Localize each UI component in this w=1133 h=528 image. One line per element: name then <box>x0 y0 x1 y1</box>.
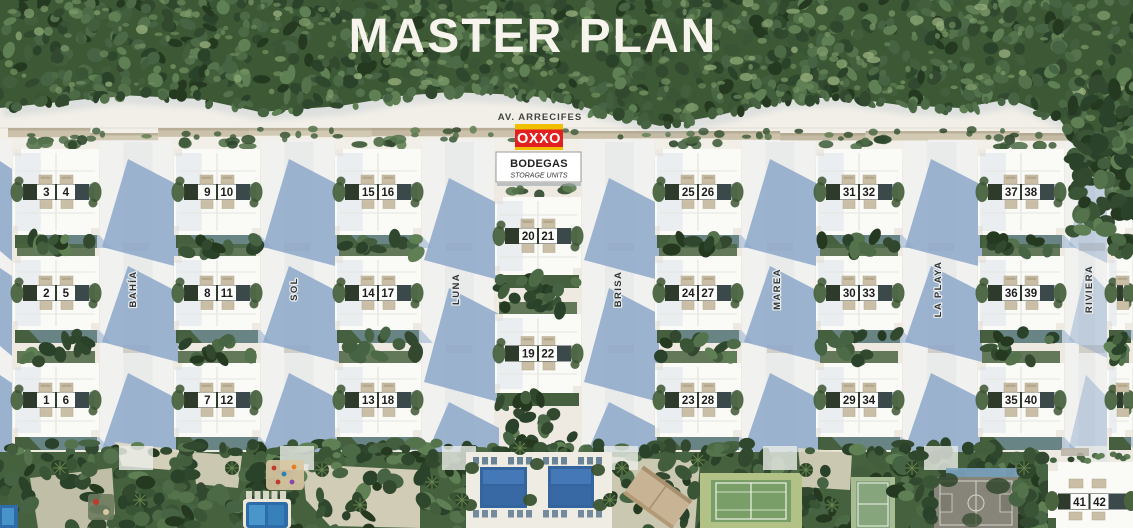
svg-text:MAREA: MAREA <box>772 268 783 310</box>
svg-text:31: 31 <box>843 187 856 199</box>
svg-text:4: 4 <box>63 187 70 199</box>
svg-text:10: 10 <box>220 187 233 199</box>
svg-text:LUNA: LUNA <box>451 273 462 305</box>
svg-text:AV. ARRECIFES: AV. ARRECIFES <box>498 112 582 123</box>
svg-text:BAHÍA: BAHÍA <box>128 270 139 307</box>
svg-text:21: 21 <box>541 231 554 243</box>
svg-text:BRISA: BRISA <box>613 271 624 308</box>
svg-text:MASTER PLAN: MASTER PLAN <box>349 10 718 63</box>
svg-text:BODEGAS: BODEGAS <box>510 158 568 170</box>
svg-text:26: 26 <box>701 187 714 199</box>
svg-text:33: 33 <box>862 288 875 300</box>
svg-text:6: 6 <box>63 395 69 407</box>
svg-text:24: 24 <box>682 288 695 300</box>
svg-text:18: 18 <box>381 395 394 407</box>
svg-text:12: 12 <box>220 395 233 407</box>
svg-text:17: 17 <box>381 288 394 300</box>
svg-text:15: 15 <box>362 187 375 199</box>
svg-text:35: 35 <box>1005 395 1018 407</box>
svg-text:25: 25 <box>682 187 695 199</box>
svg-text:3: 3 <box>43 187 49 199</box>
svg-text:38: 38 <box>1024 187 1037 199</box>
svg-text:14: 14 <box>362 288 375 300</box>
svg-text:OXXO: OXXO <box>517 131 561 147</box>
svg-text:LA PLAYA: LA PLAYA <box>933 261 944 318</box>
svg-text:22: 22 <box>541 349 554 361</box>
svg-text:RIVIERA: RIVIERA <box>1084 265 1095 313</box>
svg-text:STORAGE UNITS: STORAGE UNITS <box>510 173 567 180</box>
svg-text:7: 7 <box>204 395 210 407</box>
svg-text:19: 19 <box>522 349 535 361</box>
svg-text:11: 11 <box>221 288 234 300</box>
svg-text:29: 29 <box>843 395 856 407</box>
svg-text:SOL: SOL <box>289 277 300 301</box>
svg-text:13: 13 <box>362 395 375 407</box>
svg-text:32: 32 <box>862 187 875 199</box>
svg-text:9: 9 <box>204 187 210 199</box>
svg-text:8: 8 <box>204 288 211 300</box>
svg-text:23: 23 <box>682 395 695 407</box>
svg-text:5: 5 <box>63 288 70 300</box>
svg-text:34: 34 <box>862 395 875 407</box>
svg-text:42: 42 <box>1093 497 1106 509</box>
svg-text:1: 1 <box>43 395 50 407</box>
svg-text:2: 2 <box>43 288 49 300</box>
svg-text:30: 30 <box>843 288 856 300</box>
svg-text:37: 37 <box>1005 187 1018 199</box>
svg-text:40: 40 <box>1024 395 1037 407</box>
svg-text:36: 36 <box>1005 288 1018 300</box>
svg-text:20: 20 <box>522 231 535 243</box>
svg-text:41: 41 <box>1073 497 1086 509</box>
svg-text:28: 28 <box>701 395 714 407</box>
svg-text:16: 16 <box>381 187 394 199</box>
svg-text:39: 39 <box>1024 288 1037 300</box>
svg-text:27: 27 <box>701 288 714 300</box>
